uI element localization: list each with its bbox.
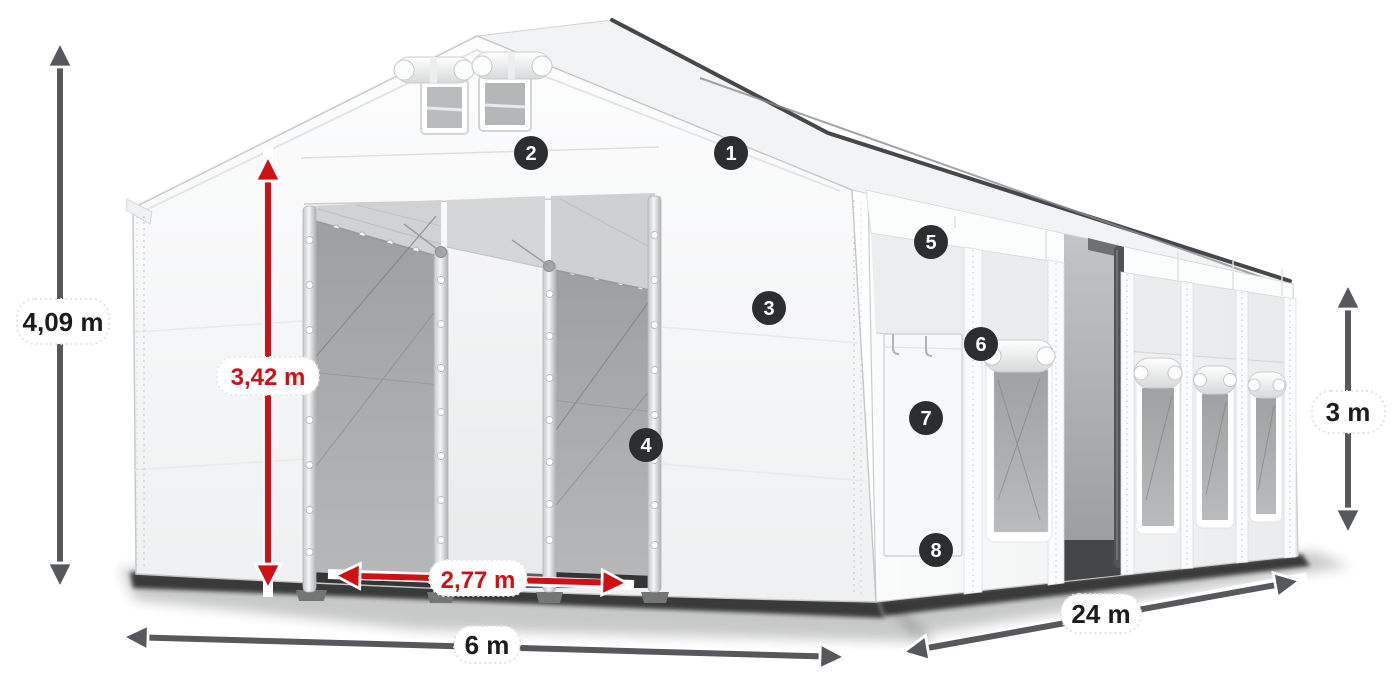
total-height-value: 4,09 m [23,307,104,337]
entrance-mesh-curtain [309,220,441,588]
callout-3-number: 3 [763,298,774,320]
side-height-label: 3 m [1312,391,1385,433]
side-door-panel [884,334,962,556]
callout-1[interactable]: 1 [714,136,748,170]
callout-3[interactable]: 3 [752,291,786,325]
side-door-opening [1064,234,1124,581]
entrance-mesh-curtain [551,270,655,588]
callout-8[interactable]: 8 [919,533,953,567]
callout-8-number: 8 [930,540,941,562]
callout-6[interactable]: 6 [964,327,998,361]
callout-5-number: 5 [925,232,936,254]
entrance-height-value: 3,42 m [231,364,306,391]
callout-5[interactable]: 5 [914,225,948,259]
callout-7[interactable]: 7 [909,401,943,435]
front-entrance-left [309,200,441,588]
side-window [983,340,1055,542]
length-value: 24 m [1071,599,1130,629]
entrance-height-label: 3,42 m [217,357,319,395]
side-window [1194,366,1237,528]
entrance-width-label: 2,77 m [429,560,527,596]
callout-7-number: 7 [920,408,931,430]
callout-4-number: 4 [640,435,652,457]
callout-2-number: 2 [525,143,536,165]
side-window [1248,372,1286,522]
callout-1-number: 1 [725,143,736,165]
callout-2[interactable]: 2 [514,136,548,170]
total-height-label: 4,09 m [17,299,109,344]
front-center-panel [447,196,545,588]
callout-6-number: 6 [975,334,986,356]
front-width-label: 6 m [454,626,520,663]
tent-dimension-diagram: 4,09 m 3,42 m 2,77 m 6 m 24 m 3 m 1 [0,0,1400,700]
diagram-canvas: 4,09 m 3,42 m 2,77 m 6 m 24 m 3 m 1 [0,0,1400,700]
front-entrance-right [551,193,655,588]
side-window [1134,358,1182,534]
callout-4[interactable]: 4 [629,428,663,462]
length-label: 24 m [1061,594,1141,633]
front-width-value: 6 m [465,630,510,660]
side-height-value: 3 m [1326,397,1371,427]
entrance-width-value: 2,77 m [441,567,516,594]
